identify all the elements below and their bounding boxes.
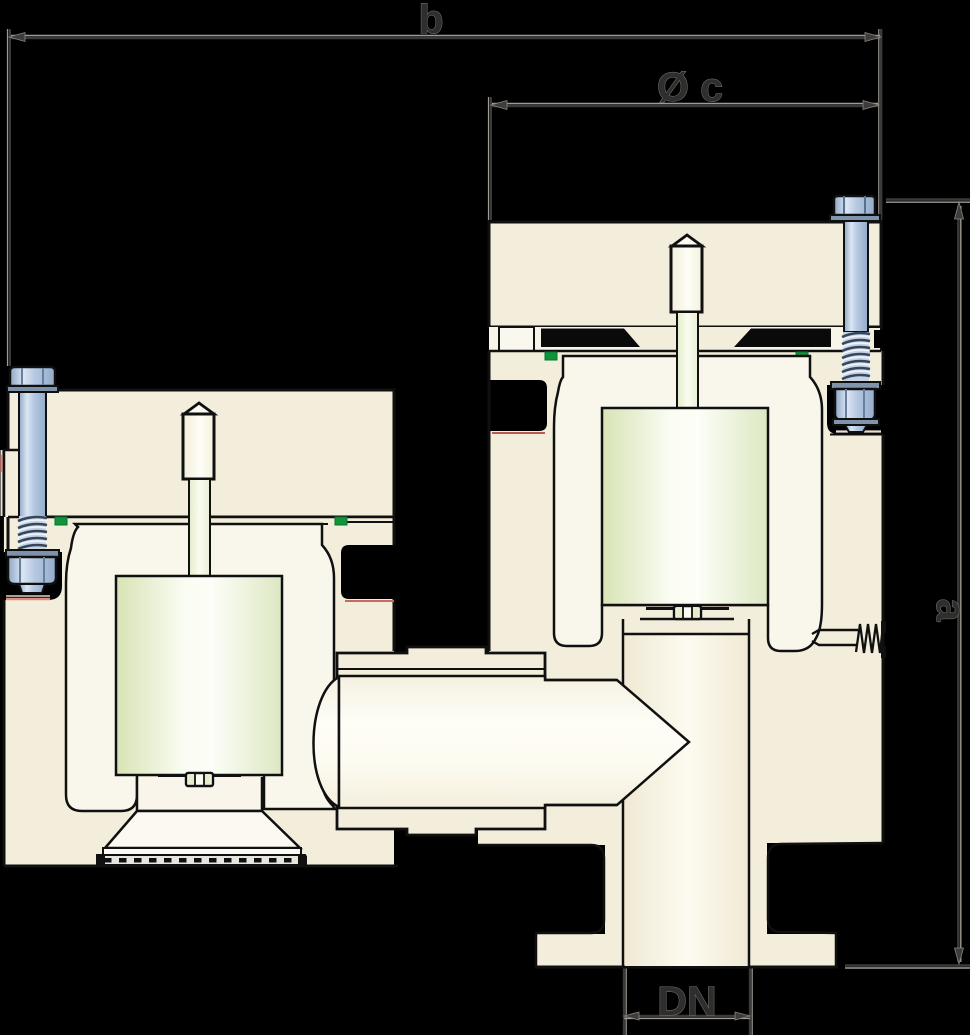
- svg-text:Ø c: Ø c: [657, 64, 723, 110]
- svg-text:DN: DN: [657, 978, 716, 1024]
- svg-text:a: a: [928, 599, 970, 623]
- svg-text:b: b: [418, 0, 443, 42]
